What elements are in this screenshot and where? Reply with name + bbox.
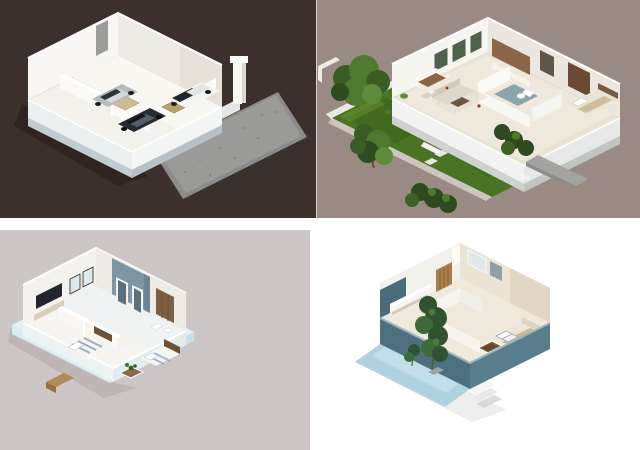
wall-recess [96, 20, 108, 56]
lawn-shrub [400, 93, 408, 98]
floor-plan-collage [0, 0, 640, 450]
bath-fixture [165, 328, 172, 332]
lawn-shrub [385, 110, 392, 115]
panel-seam [316, 0, 317, 218]
panel-studio-floor-plan [310, 230, 640, 450]
panel-house-with-lawn [316, 0, 640, 218]
panel-garage-floor-plan [0, 0, 316, 218]
panel-apartment-floor-plan [0, 230, 310, 450]
